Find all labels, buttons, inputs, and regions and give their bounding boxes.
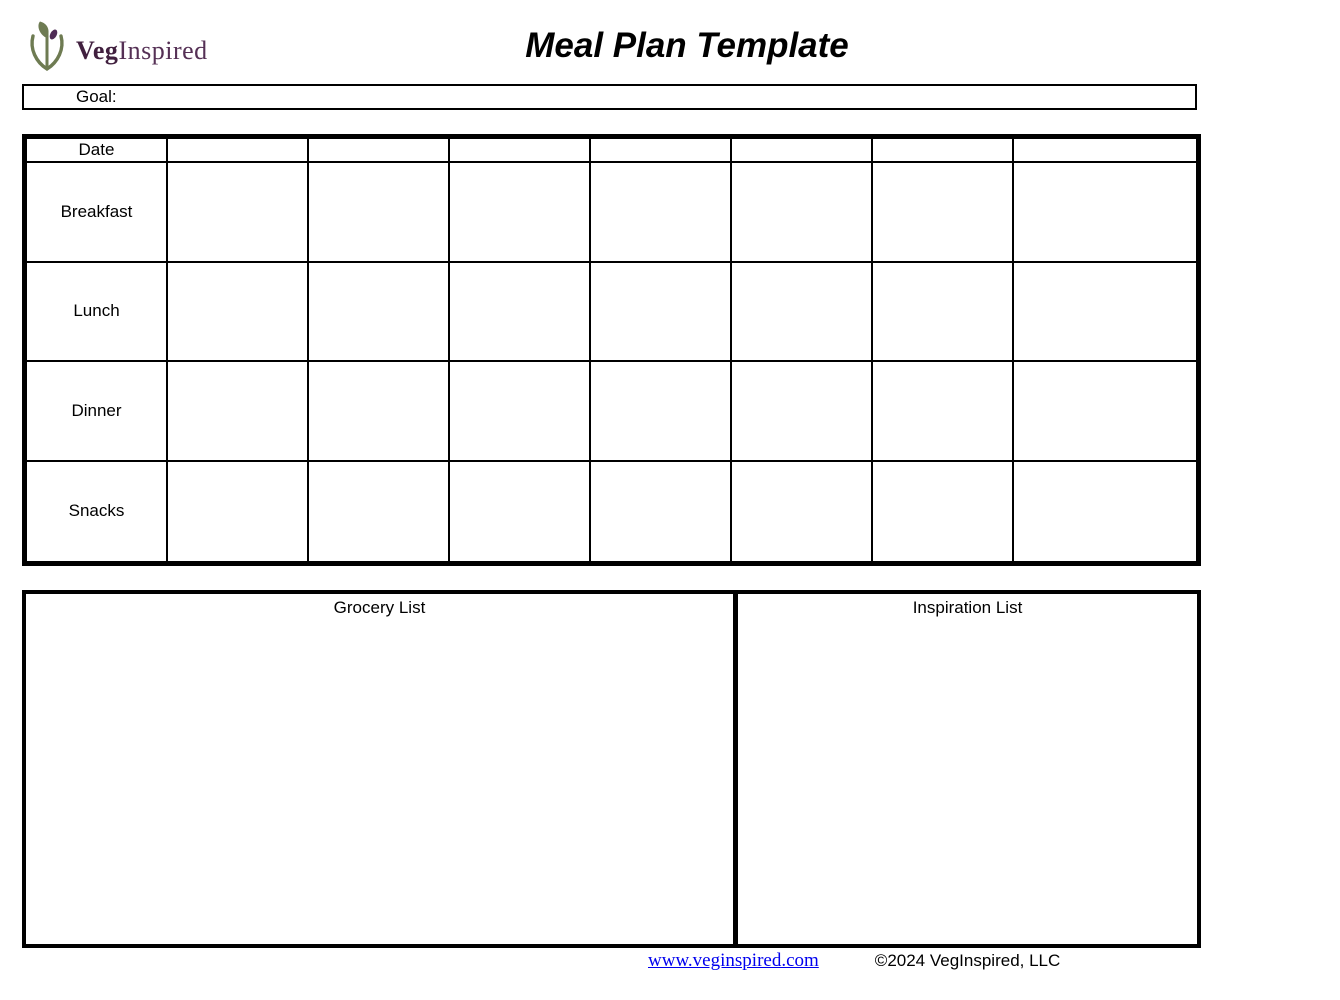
meal-cell xyxy=(732,263,873,363)
date-header-cell: Date xyxy=(27,139,168,163)
meal-cell xyxy=(309,462,450,562)
meal-cell xyxy=(168,362,309,462)
meal-plan-template-page: VegInspired Meal Plan Template Goal: Dat… xyxy=(0,0,1340,1000)
meal-cell xyxy=(591,362,732,462)
date-cell xyxy=(309,139,450,163)
meal-cell xyxy=(591,462,732,562)
footer: www.veginspired.com ©2024 VegInspired, L… xyxy=(648,950,1060,972)
inspiration-list-title: Inspiration List xyxy=(738,594,1197,618)
date-cell xyxy=(873,139,1014,163)
goal-label: Goal: xyxy=(76,87,117,107)
meal-cell xyxy=(168,163,309,263)
meal-cell xyxy=(168,263,309,363)
row-label-lunch: Lunch xyxy=(27,263,168,363)
row-label-snacks: Snacks xyxy=(27,462,168,562)
brand-name-bold: Veg xyxy=(76,36,118,65)
meal-cell xyxy=(873,263,1014,363)
brand-name-regular: Inspired xyxy=(118,36,207,65)
row-label-dinner: Dinner xyxy=(27,362,168,462)
meal-cell xyxy=(309,362,450,462)
row-label-breakfast: Breakfast xyxy=(27,163,168,263)
date-cell xyxy=(450,139,591,163)
meal-plan-table: Date Breakfast Lunch Dinner xyxy=(22,134,1201,566)
meal-cell xyxy=(309,263,450,363)
grocery-list-title: Grocery List xyxy=(26,594,733,618)
meal-cell xyxy=(450,362,591,462)
grocery-list-box: Grocery List xyxy=(26,594,738,944)
page-title: Meal Plan Template xyxy=(525,26,849,66)
meal-cell xyxy=(591,163,732,263)
brand-logo: VegInspired xyxy=(26,20,208,81)
inspiration-list-box: Inspiration List xyxy=(738,594,1197,944)
meal-cell xyxy=(873,362,1014,462)
goal-field: Goal: xyxy=(22,84,1197,110)
meal-cell xyxy=(309,163,450,263)
sprout-leaf-icon xyxy=(26,20,68,81)
meal-cell xyxy=(1014,362,1196,462)
meal-cell xyxy=(1014,263,1196,363)
copyright-text: ©2024 VegInspired, LLC xyxy=(875,951,1061,971)
website-link[interactable]: www.veginspired.com xyxy=(648,950,819,972)
meal-cell xyxy=(450,263,591,363)
meal-cell xyxy=(732,163,873,263)
meal-cell xyxy=(1014,462,1196,562)
meal-cell xyxy=(1014,163,1196,263)
meal-cell xyxy=(450,163,591,263)
meal-cell xyxy=(450,462,591,562)
meal-cell xyxy=(168,462,309,562)
meal-cell xyxy=(732,362,873,462)
meal-cell xyxy=(873,163,1014,263)
lists-section: Grocery List Inspiration List xyxy=(22,590,1201,948)
date-cell xyxy=(732,139,873,163)
date-cell xyxy=(591,139,732,163)
brand-name: VegInspired xyxy=(76,36,208,66)
meal-cell xyxy=(732,462,873,562)
date-cell xyxy=(1014,139,1196,163)
meal-cell xyxy=(591,263,732,363)
meal-cell xyxy=(873,462,1014,562)
date-cell xyxy=(168,139,309,163)
